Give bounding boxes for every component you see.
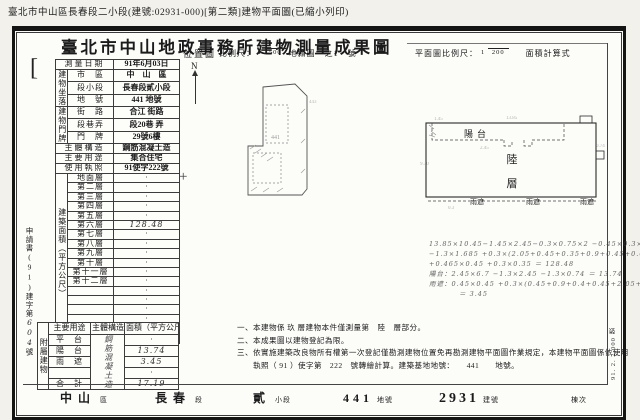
cadastral-scale-line: 比例尺： 1 500 地籍圖 之1 號 [219, 48, 357, 59]
dim-annotation: 9.30 [420, 162, 429, 167]
hatching-marks [250, 109, 305, 192]
section-label: 段小段 [68, 82, 114, 94]
plan-top-right-notch [580, 116, 592, 123]
notes-block: 一、本建物係 玖 層建物本件僅測量第 陸 層部分。 二、本成果圖以建物登記為限。… [237, 322, 629, 372]
floor-row-value: · [114, 277, 180, 286]
floor-name-char1: 陸 [507, 153, 518, 166]
license-label: 使用執照 [56, 164, 114, 174]
building-outline-dashed [253, 153, 281, 183]
annex-structure-value: 鋼筋混凝土造 [91, 335, 125, 390]
floor-row-label: 第四層 [68, 202, 114, 211]
floor-row-value: · [114, 174, 180, 183]
calc-line: +0.465×0.45 +0.3×0.35 ＝ 128.48 [429, 259, 640, 269]
canopy-area-value: 3.45 [125, 357, 179, 368]
floor-row-value: · [114, 296, 180, 305]
floor-row-label: 第六層 [68, 220, 114, 229]
land-no-label: 地 號 [68, 94, 114, 106]
applicant-number-note: 申請書(91)建字第604號 [24, 227, 35, 357]
floor-row-value: · [114, 267, 180, 276]
annex-table: 附屬建物 主要用途 主體構造 面積（平方公尺） 平 台 鋼筋混凝土造 · 陽 台… [37, 322, 179, 390]
floor-row-value: · [114, 192, 180, 201]
city-district-label: 市 區 [68, 70, 114, 82]
calc-line: −1.3×1.685 +0.3×(2.05+0.45+0.35+0.9+0.45… [429, 249, 640, 259]
date-value: 91年6月03日 [114, 60, 180, 70]
plan-scale-numerator: 1 [481, 49, 485, 56]
floor-row-label: 第十層 [68, 258, 114, 267]
annex-row-label [49, 368, 91, 379]
footer-subsection: 貳 小段 [253, 389, 291, 407]
parcel-annotation: 443 [309, 100, 317, 105]
document-header-note: 臺北市中山區長春段二小段(建號:02931-000)[第二類]建物平面圖(已縮小… [8, 4, 349, 18]
floor6-area-value: 128.48 [114, 220, 180, 229]
plan-scale-line: 平面圖比例尺： 1 200 面積計算式 [415, 48, 571, 59]
footer-subsection-value: 貳 [253, 391, 271, 405]
floor-plan-drawing: 陽台 陸 層 雨遮 雨遮 雨遮 13.85 1.45 2.45 9.30 0.7… [420, 107, 605, 211]
balcony-area-value: 13.74 [125, 346, 179, 357]
inner-top-border [407, 43, 607, 44]
canopy-label: 雨遮 [580, 197, 594, 206]
floor-name-char2: 層 [507, 177, 518, 190]
annex-row-value: · [125, 335, 179, 346]
structure-label: 主體構造 [56, 144, 114, 154]
annex-row-value: · [125, 368, 179, 379]
note-line-1: 一、本建物係 玖 層建物本件僅測量第 陸 層部分。 [237, 322, 629, 335]
structure-value: 鋼筋混凝土造 [114, 144, 180, 154]
street-label: 街 路 [68, 107, 114, 119]
note-line-4: 執照（ 91 ）使字第 222 號轉繪計算。建築基地地號： 441 地號。 [237, 360, 629, 373]
city-district-value: 中 山 區 [114, 70, 180, 82]
dim-annotation: 13.85 [506, 116, 518, 121]
footer-subsection-unit: 小段 [275, 396, 291, 404]
footer-land-no-unit: 地號 [377, 396, 393, 404]
footer-section: 長春 段 [155, 389, 203, 407]
plan-scale-label: 平面圖比例尺： [415, 48, 478, 59]
location-map-label: 位置圖 [183, 47, 216, 60]
footer-land-no: 441 地號 [343, 389, 393, 407]
floor-row-value: · [114, 183, 180, 192]
balcony-label: 陽台 [464, 128, 490, 139]
floor-row-label: 第五層 [68, 211, 114, 220]
land-no-value: 441 地號 [114, 94, 180, 106]
footer-district: 中山 區 [60, 389, 108, 407]
floor-row-label: 第八層 [68, 239, 114, 248]
location-group-label: 建物坐落 [56, 70, 68, 107]
annex-row-label: 平 台 [49, 335, 91, 346]
footer-section-value: 長春 [155, 391, 191, 405]
floor-row-label: 第七層 [68, 230, 114, 239]
floor-row-value: · [114, 230, 180, 239]
use-value: 集合住宅 [114, 154, 180, 164]
form-outer-border: 臺北市中山地政事務所建物測量成果圖 [ 測量日期 91年6月03日 建物坐落 市… [12, 26, 626, 420]
floor-row-label [68, 286, 114, 295]
floor-row-value: · [114, 249, 180, 258]
note-line-3: 三、依實施建築改良物所有權第一次登記僅勘測建物位置免再勘測建物平面圖作業規定，本… [237, 347, 629, 360]
dim-annotation: 0.74 [596, 144, 605, 149]
applicant-note-number: 604 [25, 318, 34, 348]
use-label: 主要用途 [56, 154, 114, 164]
plan-scale-denominator: 200 [488, 48, 509, 56]
calc-line: ＝ 3.45 [429, 289, 640, 299]
street-value: 合江 街路 [114, 107, 180, 119]
footer-land-no-value: 441 [343, 391, 373, 405]
canopy-row-label: 雨 遮 [49, 357, 91, 368]
floor-row-label: 第九層 [68, 249, 114, 258]
canopy-label: 雨遮 [470, 197, 484, 206]
footer-building-no: 2931 建號 [439, 389, 499, 407]
balcony-row-label: 陽 台 [49, 346, 91, 357]
inner-bottom-border [23, 384, 608, 385]
floor-row-label: 第二層 [68, 183, 114, 192]
area-group-label: 建築面積（平方公尺） [56, 174, 68, 334]
floor-row-label: 地面層 [68, 174, 114, 183]
scanned-survey-document: 臺北市中山區長春段二小段(建號:02931-000)[第二類]建物平面圖(已縮小… [0, 0, 640, 420]
door-plate-label: 門 牌 [68, 131, 114, 143]
dim-annotation: 1.45 [434, 117, 443, 122]
balcony-dashed-outline [432, 123, 564, 146]
survey-table: 測量日期 91年6月03日 建物坐落 市 區 中 山 區 段小段 長春段貳小段 … [55, 59, 180, 344]
pencil-scribble [429, 125, 436, 137]
lane-alley-value: 段20巷 弄 [114, 119, 180, 131]
annex-group-label: 附屬建物 [38, 323, 49, 390]
date-label: 測量日期 [56, 60, 114, 70]
section-value: 長春段貳小段 [114, 82, 180, 94]
annex-header-area: 面積（平方公尺） [125, 323, 179, 335]
applicant-note-suffix: 號 [25, 348, 34, 357]
footer-block-no: 棟次 [571, 389, 587, 407]
lane-alley-label: 段巷弄 [68, 119, 114, 131]
floor-row-value: · [114, 258, 180, 267]
inner-right-border [607, 43, 608, 384]
floor-row-label [68, 296, 114, 305]
door-plate-value: 29號6樓 [114, 131, 180, 143]
note-line-2: 二、本成果圖以建物登記為限。 [237, 335, 629, 348]
calc-line: 13.85×10.45−1.45×2.45−0.3×0.75×2 −0.45×0… [429, 239, 640, 249]
corner-bracket-mark: [ [30, 55, 38, 82]
footer-section-unit: 段 [195, 396, 203, 404]
door-group-label: 建物門牌 [56, 107, 68, 144]
area-formula-label: 面積計算式 [526, 48, 571, 59]
coordinate-cross-mark: + [179, 169, 187, 186]
footer-district-unit: 區 [100, 396, 108, 404]
scale-fraction: 1 500 [258, 50, 286, 57]
floor-row-value: · [114, 286, 180, 295]
annex-header-use: 主要用途 [49, 323, 91, 335]
dim-annotation: 2.45 [480, 146, 489, 151]
floor-row-label: 第十一層 [68, 267, 114, 276]
scale-numerator: 1 [258, 49, 262, 56]
license-value: 91使字222號 [114, 164, 180, 174]
print-batch-stamp: 91. 2. 2,000 張 [609, 327, 619, 380]
floor-row-label [68, 305, 114, 314]
annex-header-structure: 主體構造 [91, 323, 125, 335]
north-arrow-icon [195, 72, 196, 104]
scale-suffix: 地籍圖 之1 號 [289, 48, 357, 59]
calc-line-balcony: 陽台：2.45×6.7 −1.3×2.45 −1.3×0.74 ＝ 13.74 [429, 269, 640, 279]
footer-district-value: 中山 [60, 391, 96, 405]
canopy-label: 雨遮 [526, 197, 540, 206]
plan-scale-fraction: 1 200 [481, 50, 509, 57]
plan-right-tab [596, 151, 604, 159]
footer-building-no-unit: 建號 [483, 396, 499, 404]
floor-row-value: · [114, 305, 180, 314]
footer-block-no-unit: 棟次 [571, 396, 587, 404]
calc-line-canopy: 雨遮：0.45×0.45 +0.3×(0.45+0.9+0.4+0.45+2.0… [429, 279, 640, 289]
applicant-note-text: 申請書(91)建字第 [25, 227, 34, 318]
floor-row-label: 第三層 [68, 192, 114, 201]
scale-denominator: 500 [265, 48, 286, 56]
floor-row-value: · [114, 211, 180, 220]
parcel-annotation: 441 [271, 135, 280, 141]
dim-annotation: 0.3 [448, 206, 455, 211]
floor-row-label: 第十二層 [68, 277, 114, 286]
scale-label: 比例尺： [219, 48, 255, 59]
floor-row-value: · [114, 239, 180, 248]
floor-row-value: · [114, 202, 180, 211]
location-sketch: 441 443 [203, 83, 331, 233]
area-calculation-block: 13.85×10.45−1.45×2.45−0.3×0.75×2 −0.45×0… [429, 239, 640, 299]
footer-building-no-value: 2931 [439, 391, 479, 406]
